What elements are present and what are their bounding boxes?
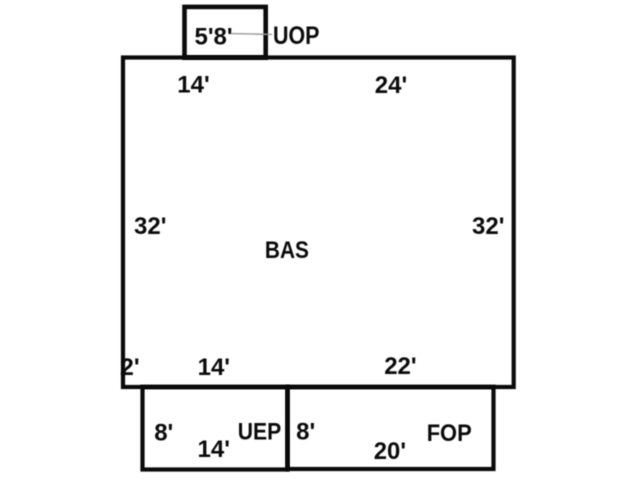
svg-text:8': 8'	[296, 419, 315, 446]
svg-text:5'8': 5'8'	[195, 24, 233, 51]
svg-text:14': 14'	[177, 72, 209, 99]
svg-text:UEP: UEP	[238, 418, 281, 445]
svg-text:8': 8'	[154, 420, 173, 447]
svg-text:24': 24'	[375, 72, 407, 99]
svg-text:FOP: FOP	[427, 420, 472, 447]
svg-text:2': 2'	[120, 354, 139, 381]
svg-text:32': 32'	[134, 213, 166, 240]
svg-text:22': 22'	[384, 353, 416, 380]
svg-text:BAS: BAS	[265, 237, 309, 264]
svg-text:20': 20'	[374, 438, 406, 465]
svg-text:32': 32'	[472, 213, 504, 240]
svg-text:14': 14'	[198, 354, 230, 381]
svg-text:14': 14'	[198, 436, 230, 463]
svg-text:UOP: UOP	[273, 22, 320, 50]
